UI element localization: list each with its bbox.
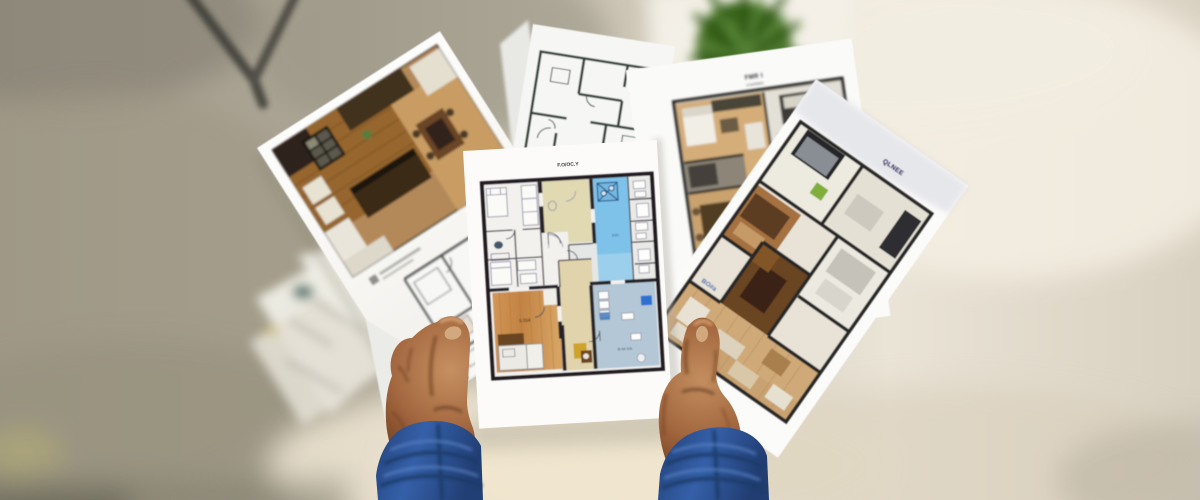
svg-text:1:114: 1:114 <box>519 317 531 323</box>
svg-text:F.O/OC.Y: F.O/OC.Y <box>557 161 579 168</box>
svg-text:B·M·SA: B·M·SA <box>618 346 633 352</box>
svg-text:EAI: EAI <box>612 232 619 237</box>
